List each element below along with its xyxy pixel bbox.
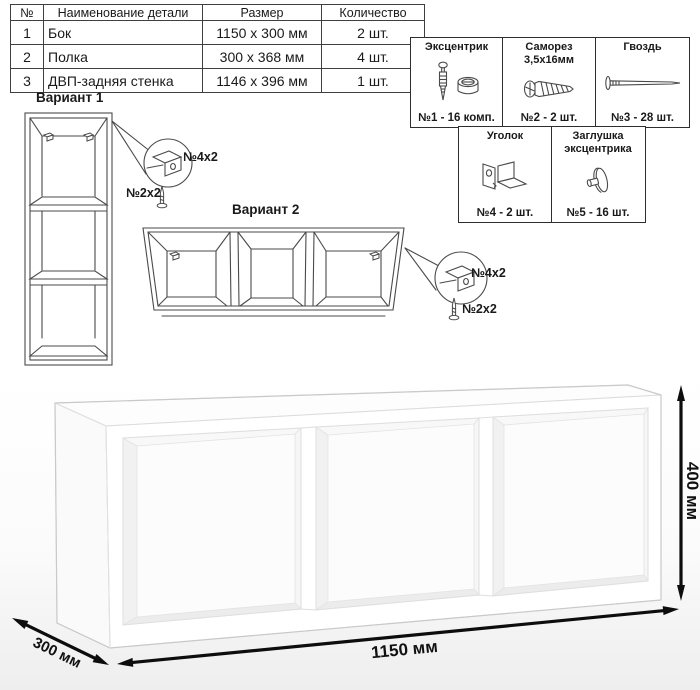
hardware-cell-eccentric: Эксцентрик xyxy=(410,37,503,128)
header-name: Наименование детали xyxy=(44,5,203,21)
variant-2-bracket-label: №4х2 xyxy=(471,266,506,280)
variant-1-bracket-label: №4х2 xyxy=(183,150,218,164)
cell-size: 300 x 368 мм xyxy=(203,45,322,69)
hardware-title: Уголок xyxy=(487,130,523,143)
hardware-icon-wrap xyxy=(411,54,502,112)
cell-name: Бок xyxy=(44,21,203,45)
compartment-2 xyxy=(316,418,479,610)
header-qty: Количество xyxy=(322,5,425,21)
hardware-box-row-1: Эксцентрик xyxy=(410,37,690,128)
hardware-title: Саморез xyxy=(525,41,572,54)
eccentric-icon xyxy=(428,60,486,106)
screw-icon xyxy=(522,73,576,105)
header-size: Размер xyxy=(203,5,322,21)
header-num: № xyxy=(11,5,44,21)
hardware-count: №2 - 2 шт. xyxy=(521,112,577,124)
hardware-cell-screw: Саморез 3,5х16мм xyxy=(502,37,597,128)
cell-name: ДВП-задняя стенка xyxy=(44,69,203,93)
hardware-count: №3 - 28 шт. xyxy=(611,112,674,124)
hardware-icon-wrap xyxy=(503,67,596,112)
hardware-icon-wrap xyxy=(552,156,645,207)
nail-icon xyxy=(602,73,684,93)
parts-table-header-row: № Наименование детали Размер Количество xyxy=(11,5,425,21)
hardware-cell-cam-cap: Заглушка эксцентрика №5 - 16 шт. xyxy=(551,126,646,223)
divider-1 xyxy=(301,427,316,610)
cell-num: 3 xyxy=(11,69,44,93)
table-row: 2 Полка 300 x 368 мм 4 шт. xyxy=(11,45,425,69)
hardware-icon-wrap xyxy=(459,143,551,207)
assembly-instruction-sheet: № Наименование детали Размер Количество … xyxy=(0,0,700,690)
table-row: 1 Бок 1150 x 300 мм 2 шт. xyxy=(11,21,425,45)
variant-1-screw-label: №2х2 xyxy=(126,186,161,200)
variant-2-screw-label: №2х2 xyxy=(462,302,497,316)
height-dimension-label: 400 мм xyxy=(683,462,700,520)
variant-2-title: Вариант 2 xyxy=(232,202,299,217)
hardware-box-row-2: Уголок №4 - 2 шт. Заглушка эксцентрика xyxy=(458,126,646,223)
divider-2 xyxy=(479,417,493,596)
hardware-title: Заглушка xyxy=(572,130,623,143)
shelf-3d-view: 400 мм 1150 мм 300 мм xyxy=(0,373,700,690)
cell-name: Полка xyxy=(44,45,203,69)
parts-table: № Наименование детали Размер Количество … xyxy=(10,4,425,93)
hardware-subtitle: эксцентрика xyxy=(564,143,632,156)
cam-cap-icon xyxy=(577,160,619,202)
cell-size: 1150 x 300 мм xyxy=(203,21,322,45)
variant-1-title: Вариант 1 xyxy=(36,90,103,105)
hardware-title: Эксцентрик xyxy=(425,41,488,54)
hardware-count: №4 - 2 шт. xyxy=(477,207,533,219)
compartment-3 xyxy=(493,408,648,596)
compartment-1 xyxy=(123,428,301,625)
hardware-count: №5 - 16 шт. xyxy=(567,207,630,219)
cell-size: 1146 x 396 мм xyxy=(203,69,322,93)
hardware-cell-corner-bracket: Уголок №4 - 2 шт. xyxy=(458,126,552,223)
hardware-title: Гвоздь xyxy=(623,41,661,54)
corner-bracket-icon xyxy=(478,157,532,193)
hardware-icon-wrap xyxy=(596,54,689,112)
hardware-cell-nail: Гвоздь №3 - 28 шт. xyxy=(595,37,690,128)
table-row: 3 ДВП-задняя стенка 1146 x 396 мм 1 шт. xyxy=(11,69,425,93)
cell-num: 1 xyxy=(11,21,44,45)
hardware-subtitle: 3,5х16мм xyxy=(524,54,574,67)
hardware-count: №1 - 16 комп. xyxy=(418,112,495,124)
cell-num: 2 xyxy=(11,45,44,69)
